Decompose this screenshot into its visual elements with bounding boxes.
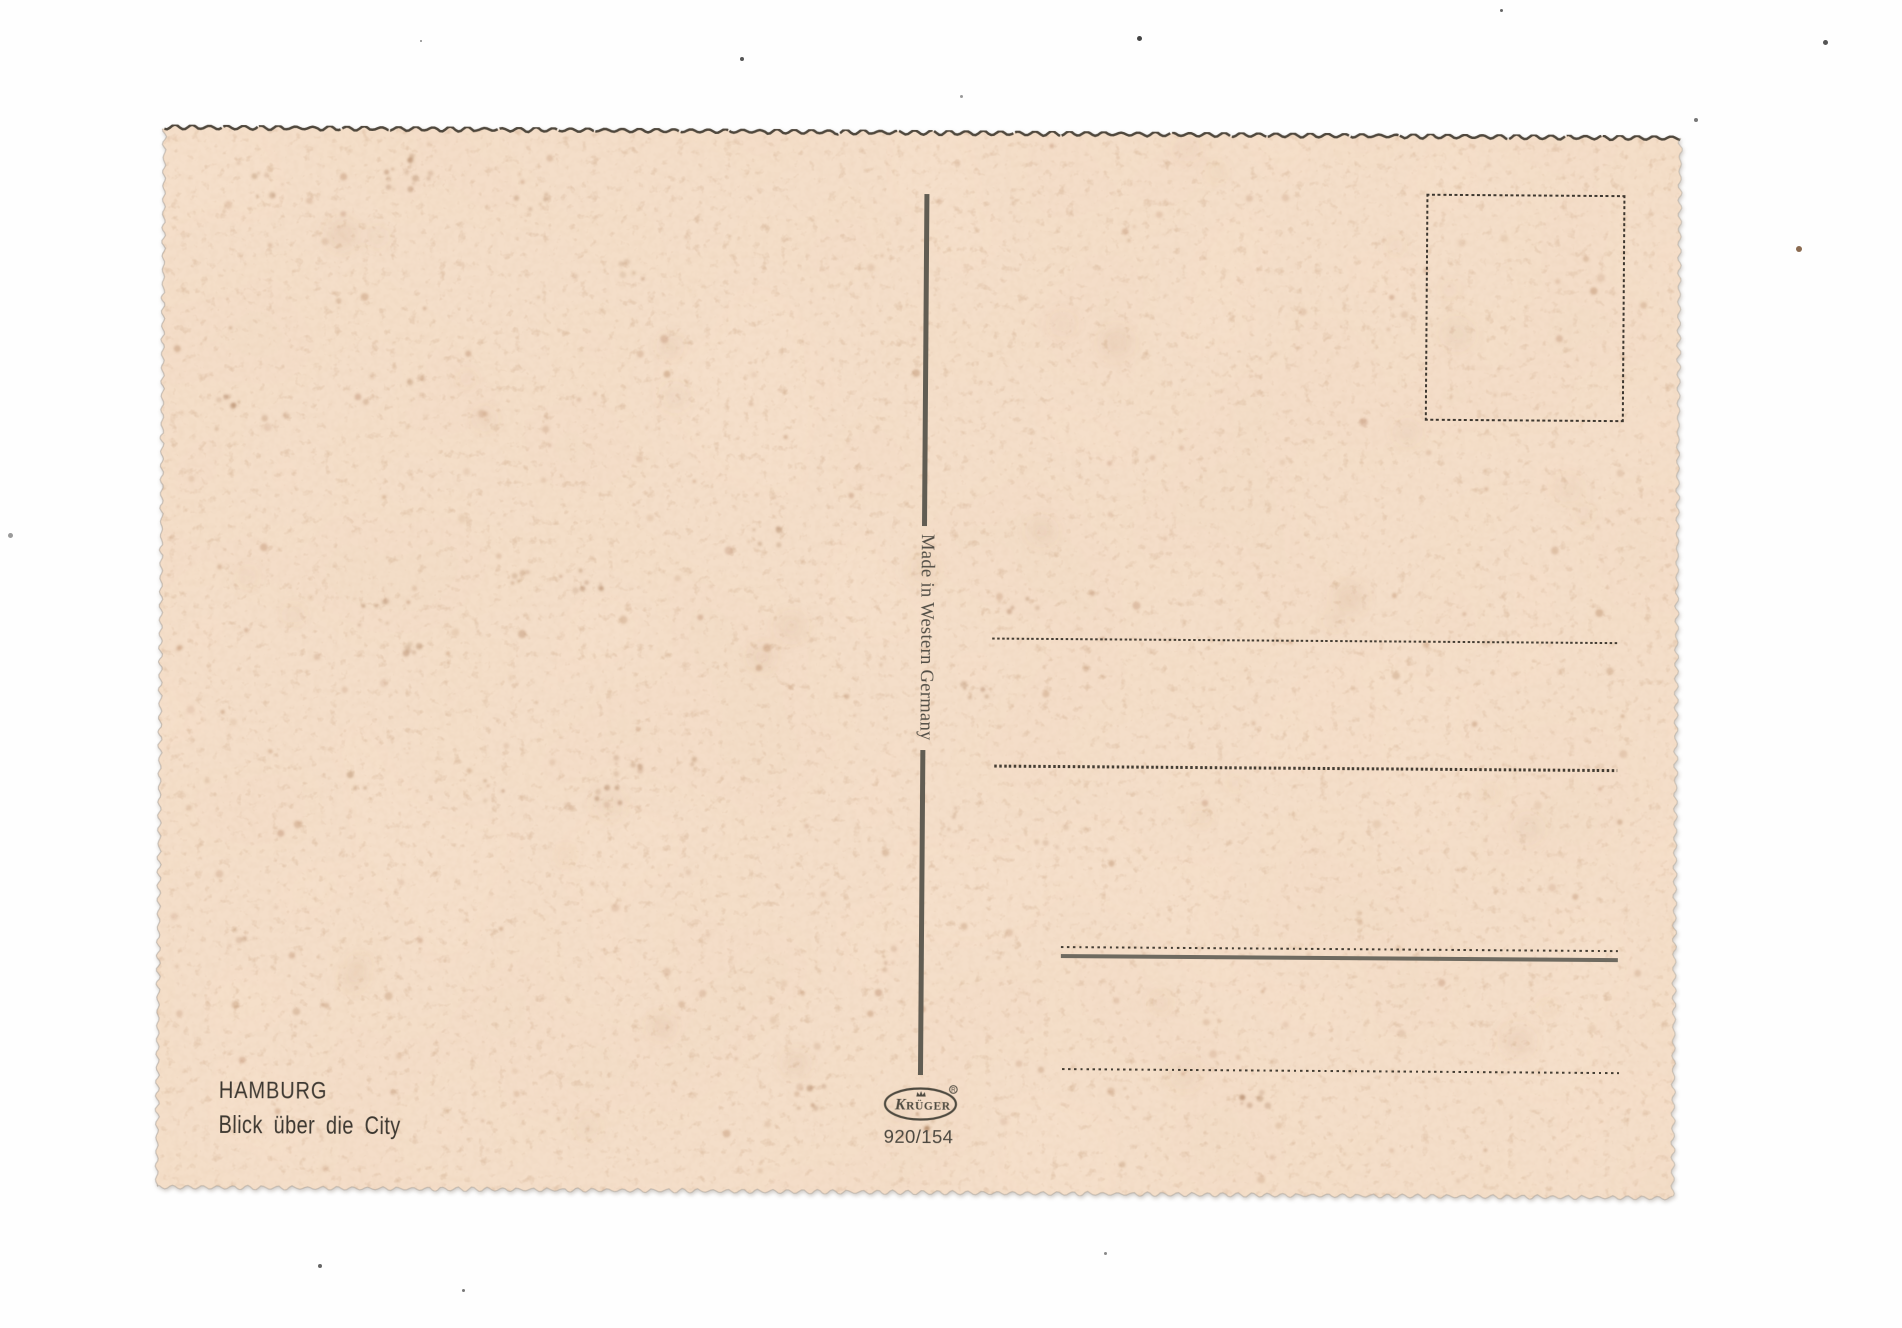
svg-text:KRÜGER: KRÜGER	[893, 1096, 950, 1113]
svg-text:R: R	[951, 1086, 956, 1093]
